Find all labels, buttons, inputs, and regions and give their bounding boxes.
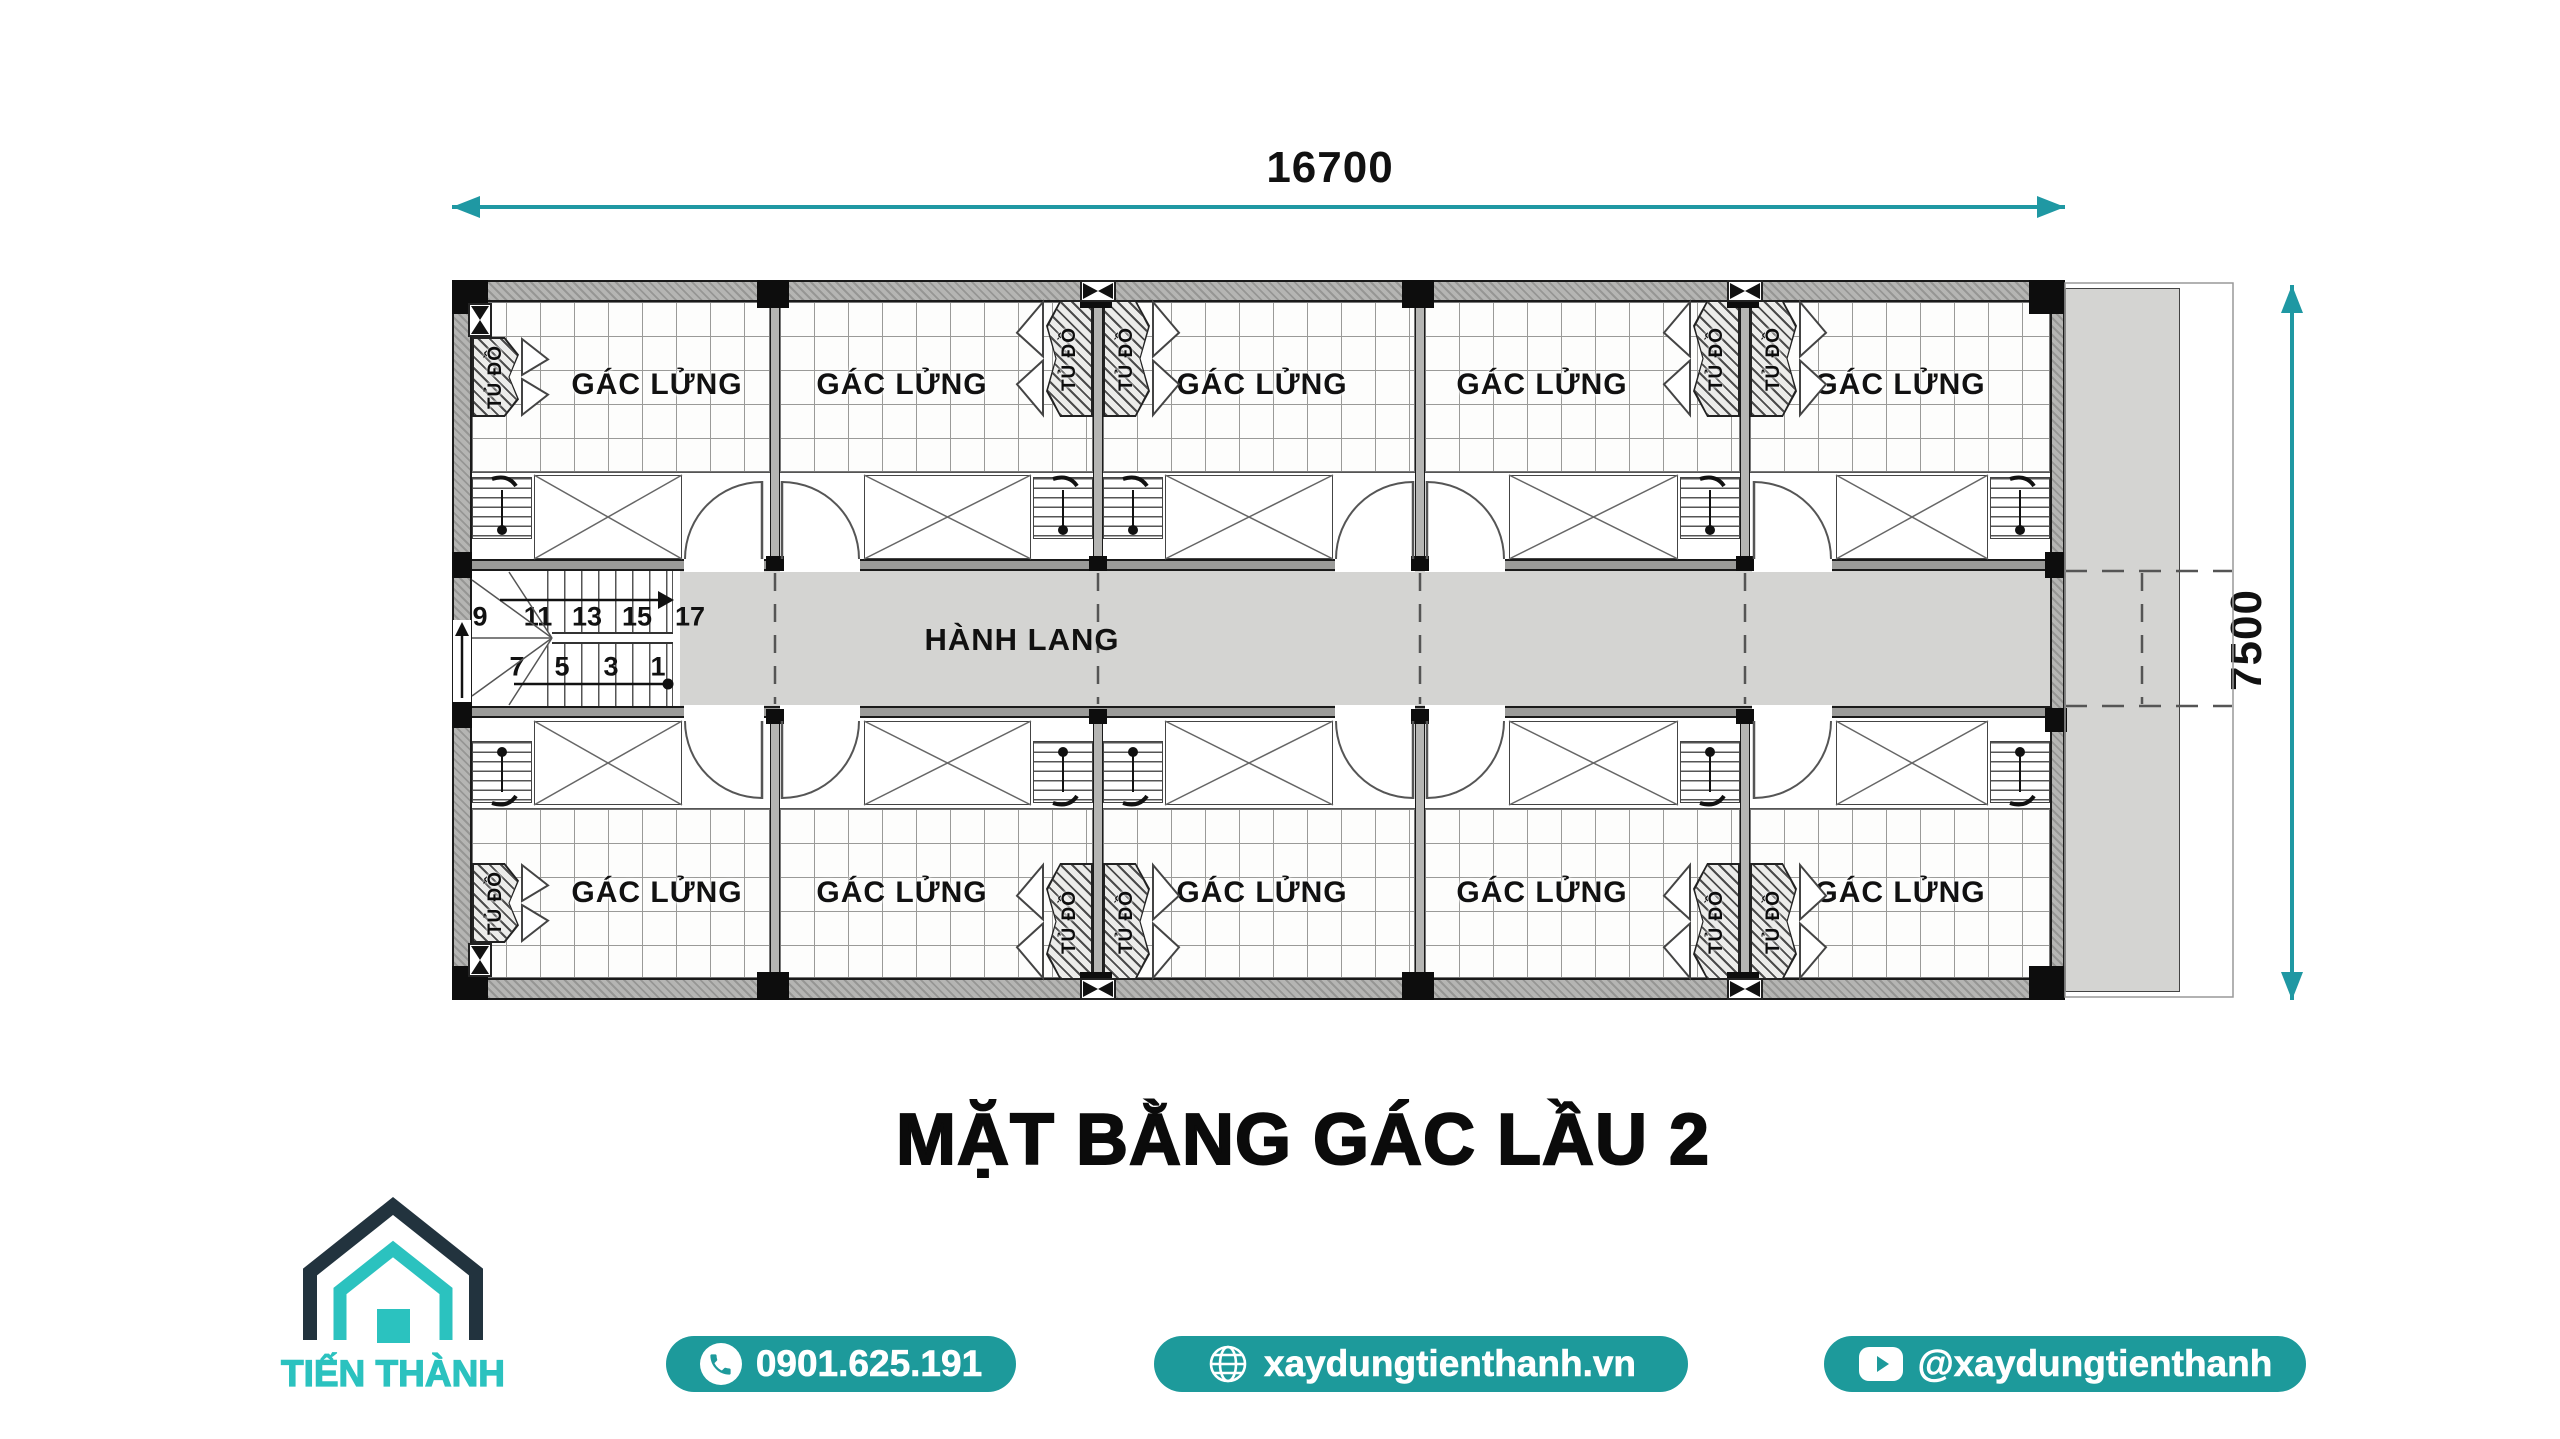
- dimension-height-arrow-top: [2281, 285, 2303, 313]
- door-arc: [1335, 721, 1413, 799]
- outer-wall-right: [2050, 280, 2065, 1000]
- unit-stair-top: [472, 477, 532, 539]
- structural-column: [452, 280, 488, 314]
- stair-number: 13: [572, 602, 602, 633]
- void-open-below-top: [534, 475, 682, 559]
- dimension-width-arrow-left: [452, 196, 480, 218]
- unit-wall: [1093, 302, 1103, 559]
- room-label: GÁC LỬNG: [816, 368, 987, 402]
- closet-label: TỦ ĐỒ: [1763, 889, 1785, 953]
- stair-number: 17: [675, 602, 705, 633]
- room-label: GÁC LỬNG: [1814, 368, 1985, 402]
- unit-wall: [1740, 302, 1750, 559]
- unit-stair-top: [1680, 477, 1740, 539]
- structural-column: [452, 552, 472, 578]
- door-opening: [1752, 558, 1832, 572]
- unit-stair-bottom: [1680, 741, 1740, 803]
- structural-column: [1402, 972, 1434, 1000]
- structural-column: [1089, 709, 1107, 724]
- structural-column: [452, 702, 472, 728]
- door-arc: [1427, 481, 1505, 559]
- door-arc: [782, 481, 860, 559]
- house-icon: [280, 1190, 510, 1350]
- structural-column: [1727, 280, 1759, 308]
- structural-column: [1080, 972, 1112, 1000]
- void-open-below-bottom: [864, 721, 1031, 805]
- dimension-height-line: [2290, 285, 2294, 1000]
- dimension-width-label: 16700: [1266, 143, 1393, 193]
- stair-number: 15: [622, 602, 652, 633]
- closet-label: TỦ ĐỒ: [485, 345, 507, 409]
- door-opening: [780, 558, 860, 572]
- structural-column: [766, 709, 784, 724]
- social-button[interactable]: @xaydungtienthanh: [1824, 1336, 2306, 1392]
- social-handle: @xaydungtienthanh: [1918, 1343, 2273, 1385]
- stair-number: 9: [472, 602, 487, 633]
- floor-plan: TỦ ĐỒ TỦ ĐỒ TỦ ĐỒ TỦ ĐỒ TỦ ĐỒ TỦ ĐỒ TỦ Đ…: [452, 280, 2235, 1000]
- unit-stair-top: [1033, 477, 1093, 539]
- room-label: GÁC LỬNG: [1814, 876, 1985, 910]
- unit-wall: [770, 718, 780, 978]
- structural-column: [2045, 708, 2067, 732]
- phone-icon: [700, 1343, 742, 1385]
- structural-column: [1411, 556, 1429, 571]
- closet-label: TỦ ĐỒ: [485, 871, 507, 935]
- website-url: xaydungtienthanh.vn: [1264, 1343, 1636, 1385]
- dimension-height-arrow-bottom: [2281, 972, 2303, 1000]
- unit-stair-bottom: [1033, 741, 1093, 803]
- room-label: GÁC LỬNG: [816, 876, 987, 910]
- phone-button[interactable]: 0901.625.191: [666, 1336, 1016, 1392]
- unit-stair-top: [1990, 477, 2050, 539]
- closet-label: TỦ ĐỒ: [1706, 326, 1728, 390]
- void-open-below-top: [1165, 475, 1333, 559]
- structural-column: [1411, 709, 1429, 724]
- void-open-below-bottom: [534, 721, 682, 805]
- structural-column: [757, 972, 789, 1000]
- main-stair-treads-upper: [547, 571, 673, 632]
- unit-wall: [770, 302, 780, 559]
- door-opening: [780, 705, 860, 719]
- stair-wall-opening: [453, 620, 471, 706]
- door-opening: [684, 558, 764, 572]
- dimension-width-line: [452, 205, 2065, 209]
- brand-logo: TIẾN THÀNH: [280, 1190, 510, 1400]
- structural-column: [2045, 552, 2065, 578]
- door-arc: [1754, 721, 1832, 799]
- room-label: GÁC LỬNG: [1176, 876, 1347, 910]
- phone-number: 0901.625.191: [756, 1343, 982, 1385]
- structural-column: [1402, 280, 1434, 308]
- stair-number: 3: [603, 652, 618, 683]
- door-opening: [1752, 705, 1832, 719]
- room-label: GÁC LỬNG: [1176, 368, 1347, 402]
- unit-stair-bottom: [472, 741, 532, 803]
- structural-column: [766, 556, 784, 571]
- dimension-width-arrow-right: [2037, 196, 2065, 218]
- void-open-below-bottom: [1509, 721, 1678, 805]
- structural-column: [1736, 709, 1754, 724]
- brand-name: TIẾN THÀNH: [281, 1353, 505, 1395]
- door-arc: [1754, 481, 1832, 559]
- structural-column: [757, 280, 789, 308]
- door-opening: [1335, 558, 1415, 572]
- door-arc: [684, 481, 762, 559]
- youtube-icon: [1858, 1346, 1904, 1382]
- closet-label: TỦ ĐỒ: [1116, 326, 1138, 390]
- structural-column: [1089, 556, 1107, 571]
- website-button[interactable]: xaydungtienthanh.vn: [1154, 1336, 1688, 1392]
- unit-wall: [1093, 718, 1103, 978]
- void-open-below-bottom: [1165, 721, 1333, 805]
- corridor-label: HÀNH LANG: [925, 622, 1120, 658]
- unit-wall: [1415, 718, 1425, 978]
- door-opening: [1425, 705, 1505, 719]
- door-arc: [1427, 721, 1505, 799]
- closet-label: TỦ ĐỒ: [1116, 889, 1138, 953]
- structural-column: [1727, 972, 1759, 1000]
- unit-stair-bottom: [1990, 741, 2050, 803]
- void-open-below-top: [864, 475, 1031, 559]
- closet-label: TỦ ĐỒ: [1059, 326, 1081, 390]
- terrace-floor: [2065, 288, 2180, 992]
- void-open-below-top: [1509, 475, 1678, 559]
- stair-number: 11: [524, 602, 553, 633]
- closet-label: TỦ ĐỒ: [1763, 326, 1785, 390]
- outer-wall-top: [452, 280, 2065, 302]
- drawing-title: MẶT BẰNG GÁC LẦU 2: [896, 1099, 1710, 1181]
- door-arc: [1335, 481, 1413, 559]
- closet-label: TỦ ĐỒ: [1059, 889, 1081, 953]
- door-opening: [684, 705, 764, 719]
- structural-column: [1736, 556, 1754, 571]
- corridor-floor: [680, 571, 2050, 706]
- unit-stair-bottom: [1103, 741, 1163, 803]
- unit-wall: [1740, 718, 1750, 978]
- globe-icon: [1206, 1342, 1250, 1386]
- structural-column: [2029, 966, 2065, 1000]
- page-canvas: 16700 7500 TỦ ĐỒ TỦ ĐỒ TỦ ĐỒ TỦ ĐỒ TỦ ĐỒ…: [0, 0, 2560, 1439]
- stair-number: 1: [650, 652, 665, 683]
- room-label: GÁC LỬNG: [571, 368, 742, 402]
- door-arc: [782, 721, 860, 799]
- stair-number: 7: [509, 652, 524, 683]
- stair-number: 5: [554, 652, 569, 683]
- room-label: GÁC LỬNG: [1456, 876, 1627, 910]
- closet-label: TỦ ĐỒ: [1706, 889, 1728, 953]
- structural-column: [452, 966, 488, 1000]
- room-label: GÁC LỬNG: [1456, 368, 1627, 402]
- unit-stair-top: [1103, 477, 1163, 539]
- structural-column: [1080, 280, 1112, 308]
- door-opening: [1425, 558, 1505, 572]
- room-label: GÁC LỬNG: [571, 876, 742, 910]
- door-arc: [684, 721, 762, 799]
- void-open-below-top: [1836, 475, 1988, 559]
- door-opening: [1335, 705, 1415, 719]
- structural-column: [2029, 280, 2065, 314]
- outer-wall-bottom: [452, 978, 2065, 1000]
- unit-wall: [1415, 302, 1425, 559]
- void-open-below-bottom: [1836, 721, 1988, 805]
